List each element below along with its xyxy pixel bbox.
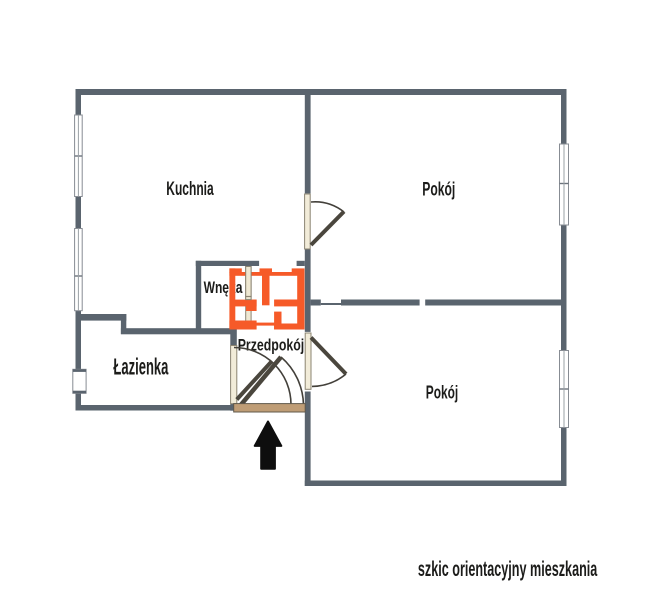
svg-text:Wnęka: Wnęka [204, 278, 243, 297]
svg-text:Łazienka: Łazienka [113, 353, 168, 379]
svg-text:Pokój: Pokój [422, 180, 455, 201]
svg-text:Pokój: Pokój [426, 382, 458, 403]
svg-text:Przedpokój: Przedpokój [238, 337, 305, 355]
svg-text:szkic orientacyjny mieszkania: szkic orientacyjny mieszkania [418, 557, 597, 581]
svg-text:Kuchnia: Kuchnia [166, 178, 213, 200]
